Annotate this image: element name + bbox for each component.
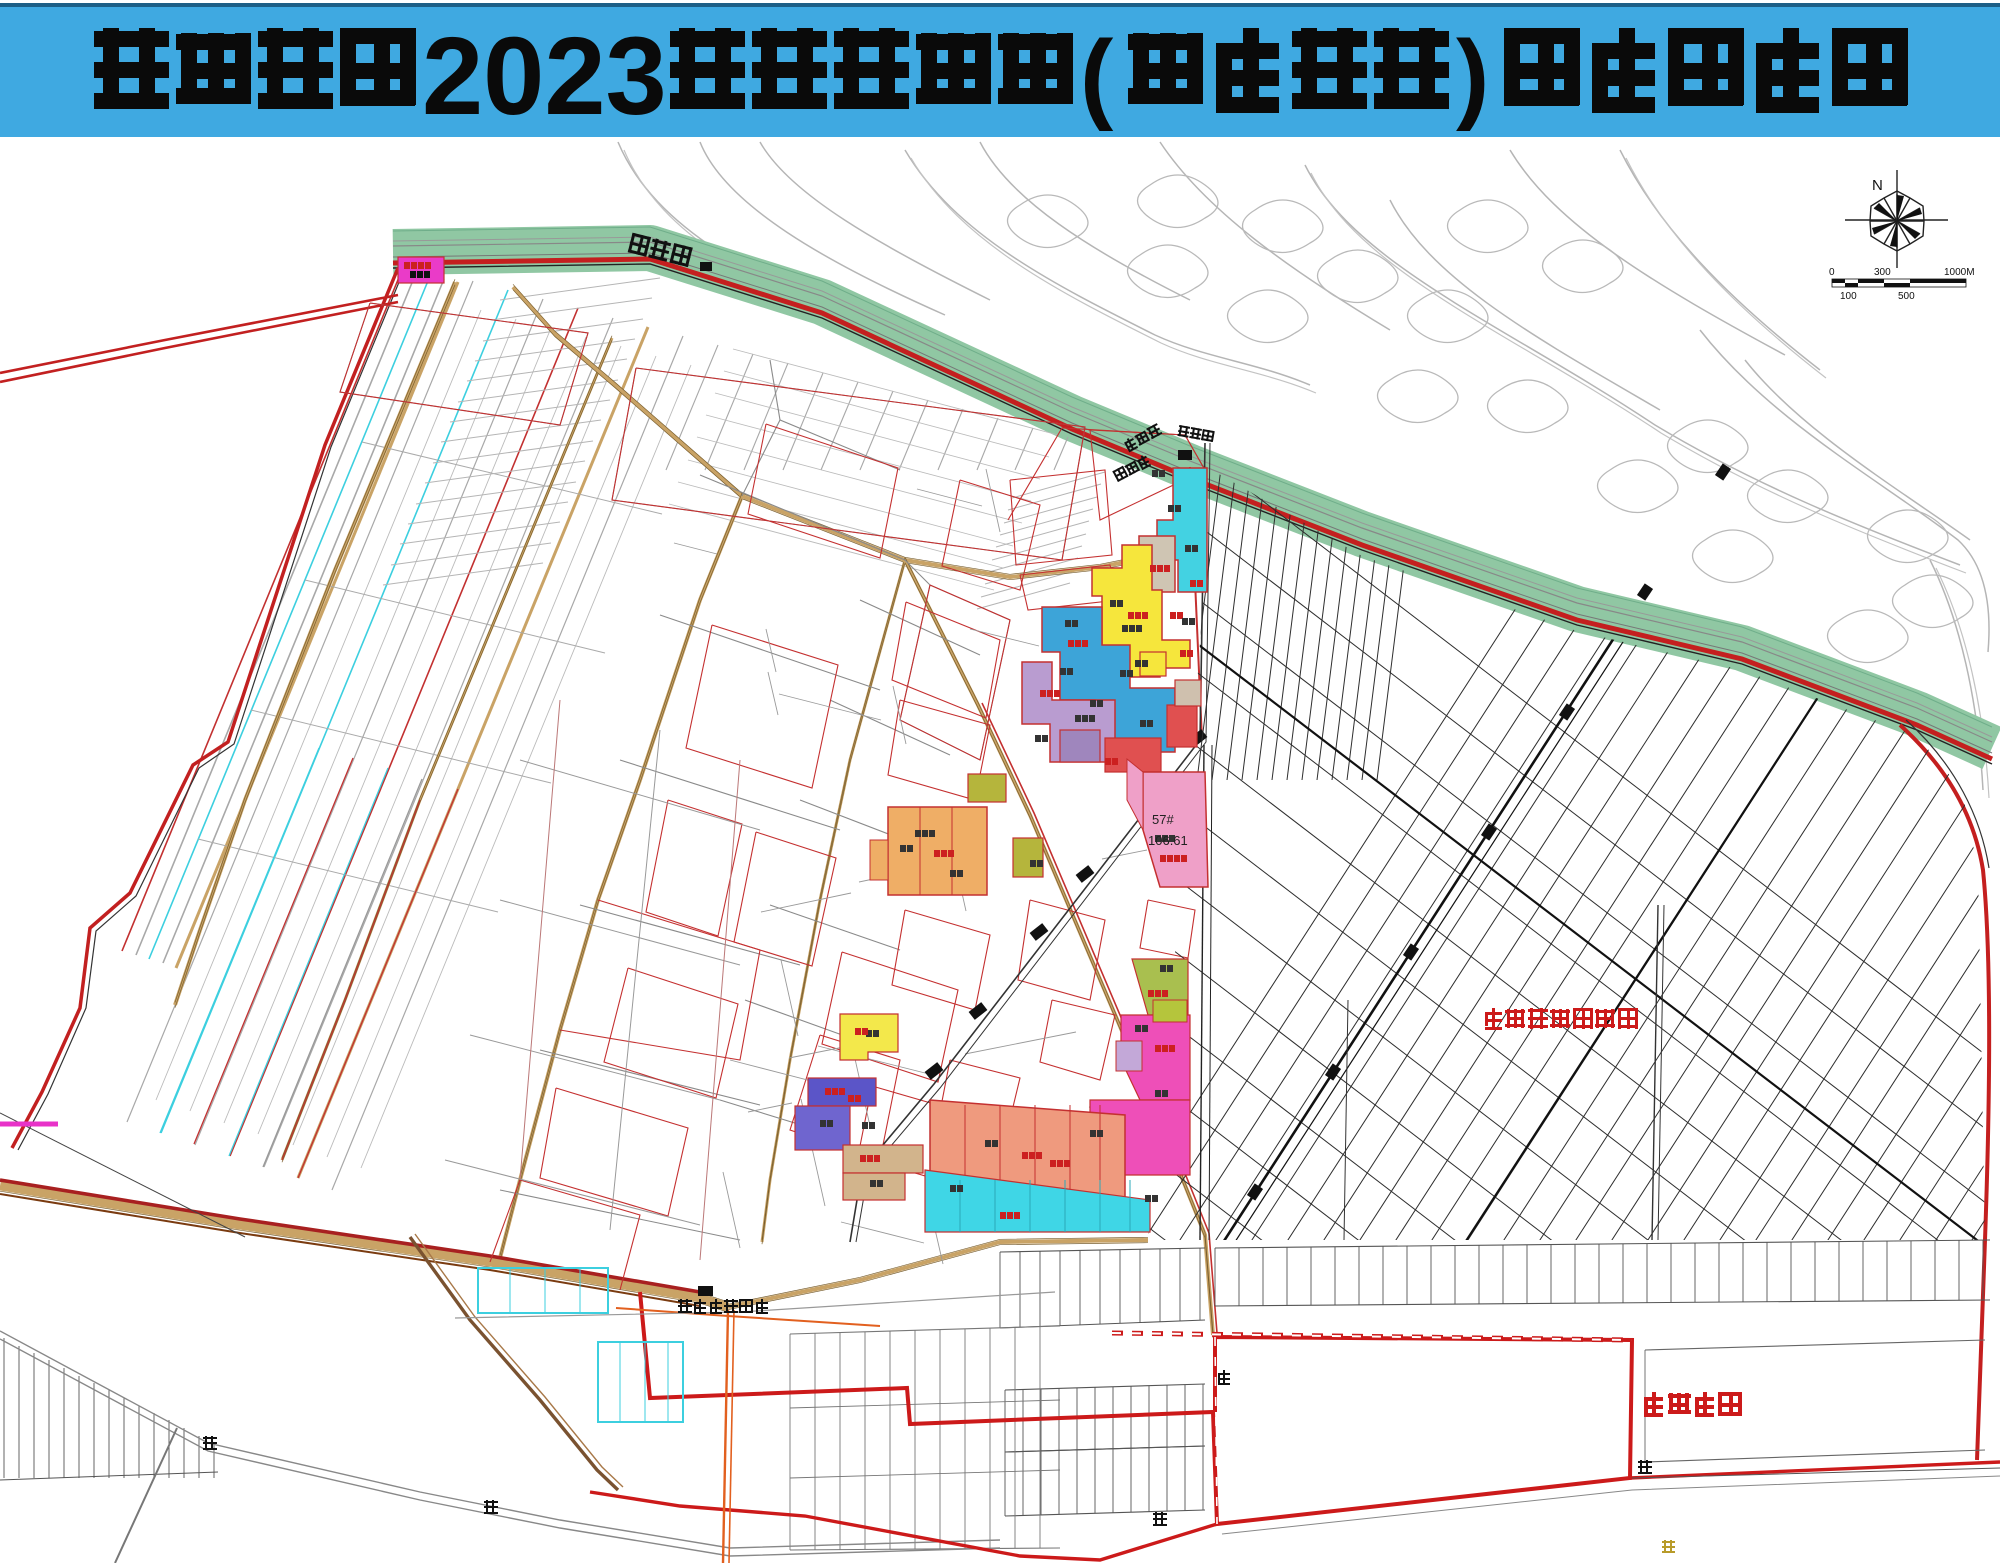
svg-text:1000M: 1000M xyxy=(1944,267,1975,278)
svg-text:300: 300 xyxy=(1874,267,1891,278)
svg-text:N: N xyxy=(1872,177,1883,194)
svg-text:500: 500 xyxy=(1898,291,1915,302)
svg-text:(: ( xyxy=(1080,20,1114,132)
svg-text:100: 100 xyxy=(1840,291,1857,302)
svg-text:0: 0 xyxy=(1829,267,1835,278)
svg-text:57#: 57# xyxy=(1152,812,1174,827)
svg-text:): ) xyxy=(1456,20,1489,132)
svg-text:2023: 2023 xyxy=(422,15,667,138)
svg-text:106.61: 106.61 xyxy=(1148,833,1188,848)
